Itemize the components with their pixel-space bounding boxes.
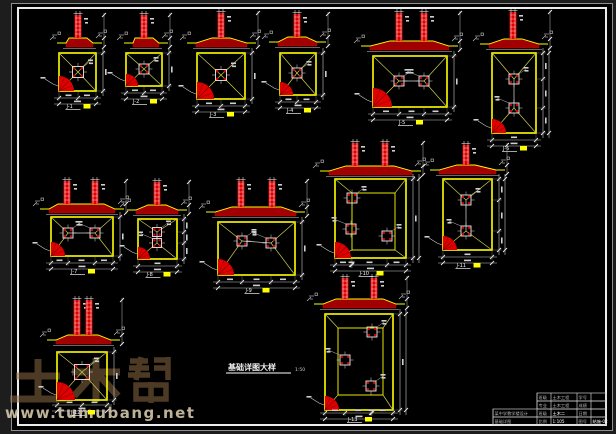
column-section	[421, 13, 428, 41]
detail-hatch-quarter-icon	[57, 382, 75, 400]
break-symbol-icon	[473, 33, 484, 41]
break-symbol-icon	[117, 32, 128, 40]
footing-plan-view	[307, 314, 394, 410]
detail-hatch-quarter-icon	[335, 242, 351, 258]
foundation-detail-J-10: J-10	[313, 139, 426, 277]
footing-plan-view	[262, 53, 317, 95]
column-section	[92, 181, 99, 204]
scale-chip	[263, 288, 270, 293]
foundation-detail-J-2: J-2	[108, 11, 173, 105]
svg-text:J-3: J-3	[209, 112, 216, 118]
svg-text:班级: 班级	[539, 394, 548, 401]
detail-label: J-9	[245, 288, 270, 294]
footing-plan-view	[33, 217, 114, 256]
svg-text:J-13: J-13	[347, 417, 357, 423]
foundation-detail-J-3: J-3	[179, 9, 261, 118]
svg-text:结施-02: 结施-02	[593, 418, 609, 425]
scale-chip	[164, 272, 171, 277]
scale-chip	[88, 269, 95, 274]
footing-section-view	[354, 9, 463, 52]
cad-canvas: 土木帮 www.tumubang.net J-1J-2J-3J-4J-5J-6J…	[0, 0, 616, 434]
detail-label: J-4	[286, 108, 311, 114]
foundation-detail-J-5: J-5	[354, 9, 463, 126]
footing-section-view	[180, 9, 261, 49]
scale-chip	[474, 263, 481, 268]
caption-scale: 1:50	[295, 367, 305, 373]
footing-plan-view	[317, 179, 407, 258]
footing-section-view	[120, 178, 192, 216]
scale-chip	[365, 417, 372, 422]
scale-chip	[227, 112, 234, 117]
dimension-lines	[133, 214, 188, 274]
column-section	[154, 182, 161, 205]
foundation-detail-J-4: J-4	[262, 10, 331, 114]
footing-plan-view	[474, 53, 537, 133]
svg-text:J-7: J-7	[70, 269, 77, 275]
column-section	[396, 13, 403, 41]
detail-label: J-10	[359, 271, 384, 277]
scale-chip	[416, 120, 423, 125]
detail-label: J-2	[132, 99, 157, 105]
break-symbol-icon	[199, 201, 210, 209]
svg-text:土木工程: 土木工程	[553, 402, 571, 409]
svg-text:J-11: J-11	[456, 263, 466, 269]
scale-chip	[377, 271, 384, 276]
column-section	[218, 13, 225, 38]
detail-hatch-quarter-icon	[126, 74, 138, 86]
detail-label: J-6	[502, 146, 527, 152]
column-section	[75, 15, 82, 38]
foundation-detail-J-7: J-7	[33, 177, 129, 275]
foundation-detail-J-6: J-6	[473, 8, 553, 152]
scale-chip	[520, 146, 527, 151]
column-section	[382, 143, 389, 166]
column-section	[74, 300, 81, 335]
dimension-lines	[46, 212, 124, 271]
column-section	[86, 300, 93, 335]
detail-label: J-1	[66, 104, 91, 110]
footing-section-view	[117, 11, 173, 49]
footing-section-view	[40, 296, 125, 346]
detail-hatch-quarter-icon	[443, 236, 457, 250]
detail-label: J-11	[456, 263, 481, 269]
column-section	[269, 181, 276, 207]
break-symbol-icon	[180, 32, 191, 40]
svg-text:土木二: 土木二	[553, 410, 566, 417]
footing-section-view	[307, 274, 410, 310]
scale-chip	[304, 108, 311, 113]
footing-section-view	[50, 11, 107, 49]
footing-plan-view	[425, 179, 493, 250]
break-symbol-icon	[40, 329, 51, 337]
foundation-detail-J-13: J-13	[307, 274, 410, 423]
break-symbol-icon	[423, 159, 434, 167]
column-section	[352, 143, 359, 166]
footing-plan-view	[200, 222, 296, 275]
footing-plan-view	[39, 352, 108, 400]
footing-section-view	[473, 8, 553, 50]
column-section	[294, 14, 301, 37]
footing-plan-view	[41, 53, 97, 91]
detail-label: J-8	[146, 272, 171, 278]
svg-text:日期: 日期	[579, 411, 587, 417]
svg-text:某中学教学楼设计: 某中学教学楼设计	[495, 410, 529, 417]
foundation-detail-J-8: J-8	[120, 178, 192, 278]
break-symbol-icon	[262, 31, 273, 39]
foundation-detail-J-11: J-11	[423, 141, 510, 269]
dimension-lines	[368, 51, 458, 122]
footing-plan-view	[108, 53, 163, 86]
break-symbol-icon	[33, 198, 44, 206]
detail-hatch-quarter-icon	[51, 242, 65, 256]
svg-text:土木工程: 土木工程	[553, 394, 571, 401]
column-section	[238, 181, 245, 207]
detail-hatch-quarter-icon	[280, 82, 293, 95]
foundation-detail-J-9: J-9	[199, 177, 310, 294]
detail-hatch-quarter-icon	[218, 259, 234, 275]
dimension-lines	[192, 48, 256, 114]
dimension-lines	[213, 217, 306, 290]
svg-text:成绩: 成绩	[579, 402, 588, 409]
svg-text:J-9: J-9	[245, 288, 252, 294]
svg-text:J-10: J-10	[359, 271, 369, 277]
svg-text:专业: 专业	[539, 402, 547, 409]
break-symbol-icon	[307, 293, 318, 301]
foundation-details-sheet: J-1J-2J-3J-4J-5J-6J-7J-8J-9J-10J-11J-12J…	[0, 0, 616, 434]
svg-text:班级: 班级	[539, 410, 548, 417]
svg-text:J-8: J-8	[146, 272, 153, 278]
detail-hatch-quarter-icon	[138, 247, 150, 259]
column-section	[141, 15, 148, 38]
scale-chip	[84, 104, 91, 109]
footing-plan-view	[355, 56, 448, 107]
svg-text:1:105: 1:105	[553, 419, 565, 424]
svg-text:J-4: J-4	[286, 108, 293, 114]
footing-section-view	[33, 177, 129, 215]
scale-chip	[88, 410, 95, 415]
detail-label: J-3	[209, 112, 234, 118]
break-symbol-icon	[354, 35, 365, 43]
svg-text:J-5: J-5	[398, 120, 405, 126]
detail-label: J-7	[70, 269, 95, 275]
column-section	[64, 181, 71, 204]
footing-section-view	[313, 139, 426, 177]
foundation-detail-J-12: J-12	[39, 296, 125, 416]
break-symbol-icon	[313, 160, 324, 168]
footing-plan-view	[179, 53, 246, 99]
svg-text:J-12: J-12	[70, 410, 80, 416]
footing-plan-view	[120, 219, 178, 259]
svg-text:基础详图: 基础详图	[495, 418, 512, 425]
caption-text: 基础详图大样	[227, 362, 276, 372]
detail-hatch-quarter-icon	[325, 396, 339, 410]
svg-text:图号: 图号	[579, 419, 587, 425]
svg-text:J-1: J-1	[66, 104, 73, 110]
footing-section-view	[199, 177, 310, 218]
svg-text:J-2: J-2	[132, 99, 139, 105]
footing-section-view	[262, 10, 331, 48]
scale-chip	[150, 99, 157, 104]
break-symbol-icon	[50, 32, 61, 40]
sheet-caption: 基础详图大样1:50	[226, 362, 305, 373]
dimension-lines	[275, 48, 327, 110]
svg-text:学号: 学号	[579, 394, 587, 401]
detail-label: J-13	[347, 417, 372, 423]
foundation-detail-J-1: J-1	[41, 11, 107, 110]
svg-text:比例: 比例	[539, 418, 547, 425]
detail-label: J-5	[398, 120, 423, 126]
detail-hatch-quarter-icon	[492, 119, 506, 133]
